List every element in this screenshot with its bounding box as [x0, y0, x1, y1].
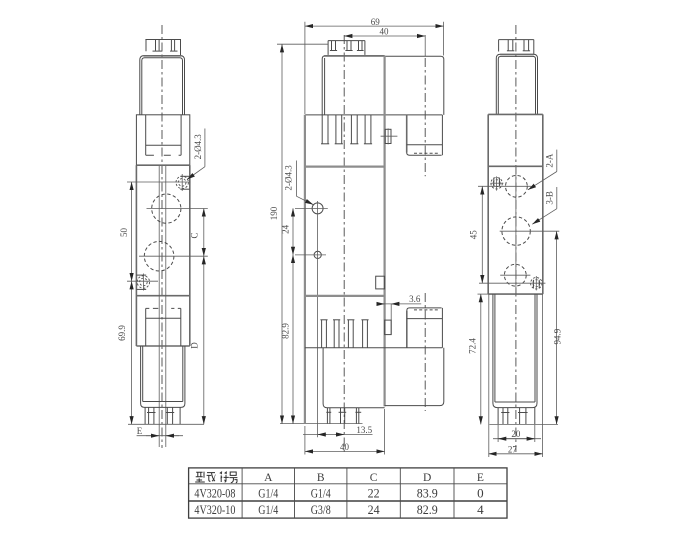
svg-text:D: D [189, 342, 199, 349]
svg-text:27: 27 [508, 444, 518, 454]
svg-text:2-Ø4.3: 2-Ø4.3 [284, 165, 294, 191]
svg-text:69: 69 [371, 17, 381, 27]
svg-text:3-B: 3-B [545, 191, 555, 205]
svg-text:72.4: 72.4 [467, 338, 477, 354]
svg-text:13.5: 13.5 [356, 425, 372, 435]
svg-text:82.9: 82.9 [417, 502, 438, 517]
svg-text:69.9: 69.9 [117, 325, 127, 341]
svg-text:4V320-10: 4V320-10 [194, 502, 235, 517]
svg-text:22: 22 [368, 485, 380, 500]
svg-text:83.9: 83.9 [417, 485, 438, 500]
svg-text:45: 45 [468, 230, 478, 240]
svg-text:24: 24 [281, 224, 291, 234]
svg-text:A: A [264, 472, 273, 484]
svg-text:94.9: 94.9 [552, 328, 562, 344]
svg-text:4V320-08: 4V320-08 [194, 485, 235, 500]
svg-text:E: E [477, 472, 484, 484]
svg-text:G3/8: G3/8 [311, 502, 331, 517]
svg-text:24: 24 [368, 502, 380, 517]
svg-text:C: C [189, 232, 199, 238]
svg-text:82.9: 82.9 [281, 323, 291, 339]
svg-text:0: 0 [477, 485, 484, 500]
svg-text:40: 40 [340, 442, 350, 452]
svg-text:3.6: 3.6 [409, 294, 421, 304]
svg-text:G1/4: G1/4 [258, 485, 278, 500]
svg-text:2-Ø4.3: 2-Ø4.3 [193, 134, 203, 160]
svg-text:40: 40 [380, 26, 390, 36]
svg-text:4: 4 [477, 502, 484, 517]
svg-text:G1/4: G1/4 [258, 502, 278, 517]
svg-text:50: 50 [119, 228, 129, 238]
svg-text:C: C [370, 472, 378, 484]
svg-text:20: 20 [511, 429, 521, 439]
svg-text:B: B [317, 472, 325, 484]
svg-text:D: D [423, 472, 431, 484]
svg-text:190: 190 [269, 206, 279, 220]
svg-text:2-A: 2-A [545, 153, 555, 167]
svg-text:E: E [137, 426, 143, 436]
svg-text:G1/4: G1/4 [311, 485, 331, 500]
